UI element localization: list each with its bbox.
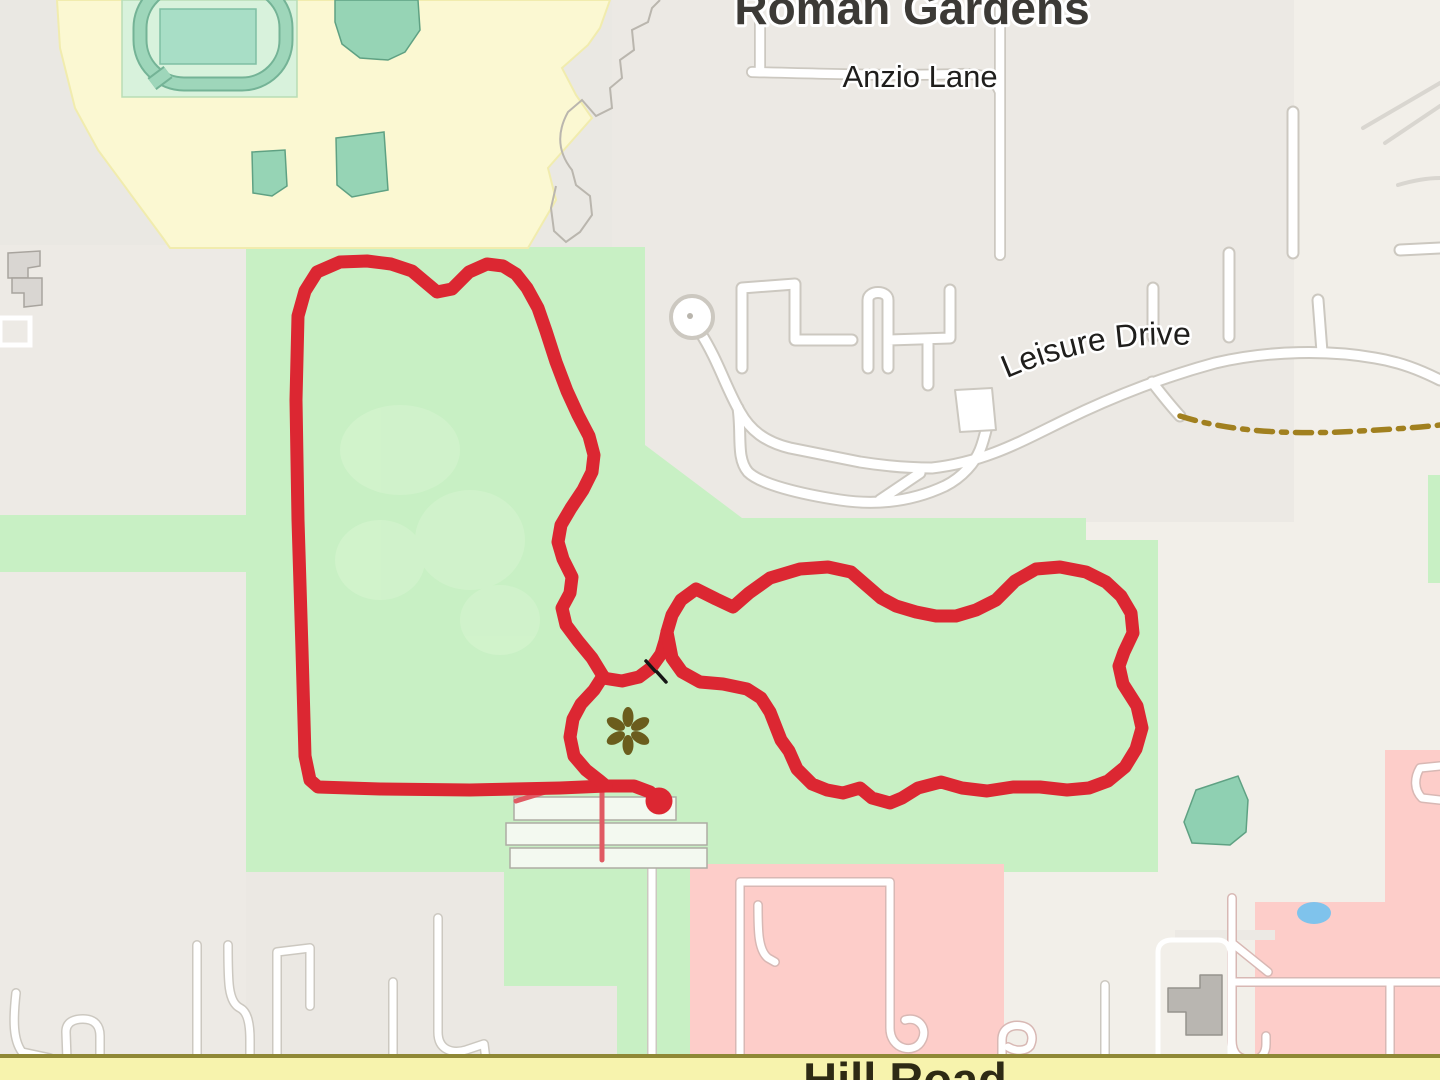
- landuse-layer: [0, 0, 1440, 1080]
- hill-road-surface: [0, 1058, 1440, 1080]
- place-label-roman-gardens: Roman Gardens: [734, 0, 1089, 34]
- route-endpoint-marker: [646, 788, 673, 815]
- hill-road: [0, 1054, 1440, 1080]
- park-sliver-east: [1428, 475, 1440, 583]
- stadium-field: [160, 9, 256, 64]
- road-label-anzio-lane: Anzio Lane: [842, 59, 997, 94]
- leisure-parking-pad: [955, 388, 996, 432]
- park-strip-west: [0, 515, 248, 572]
- residential-left-column: [0, 245, 246, 1060]
- cul-de-sac-dot: [687, 313, 693, 319]
- pink-block-east: [1255, 902, 1440, 1080]
- map-canvas[interactable]: Roman Gardens Anzio Lane Leisure Drive H…: [0, 0, 1440, 1080]
- map-viewport[interactable]: Roman Gardens Anzio Lane Leisure Drive H…: [0, 0, 1440, 1080]
- pond: [1297, 902, 1331, 924]
- school-building-large: [336, 132, 388, 197]
- road-label-hill-road: Hill Road: [803, 1053, 1007, 1080]
- school-building-small: [252, 150, 287, 196]
- parking-row: [510, 848, 707, 868]
- parking-row: [506, 823, 707, 845]
